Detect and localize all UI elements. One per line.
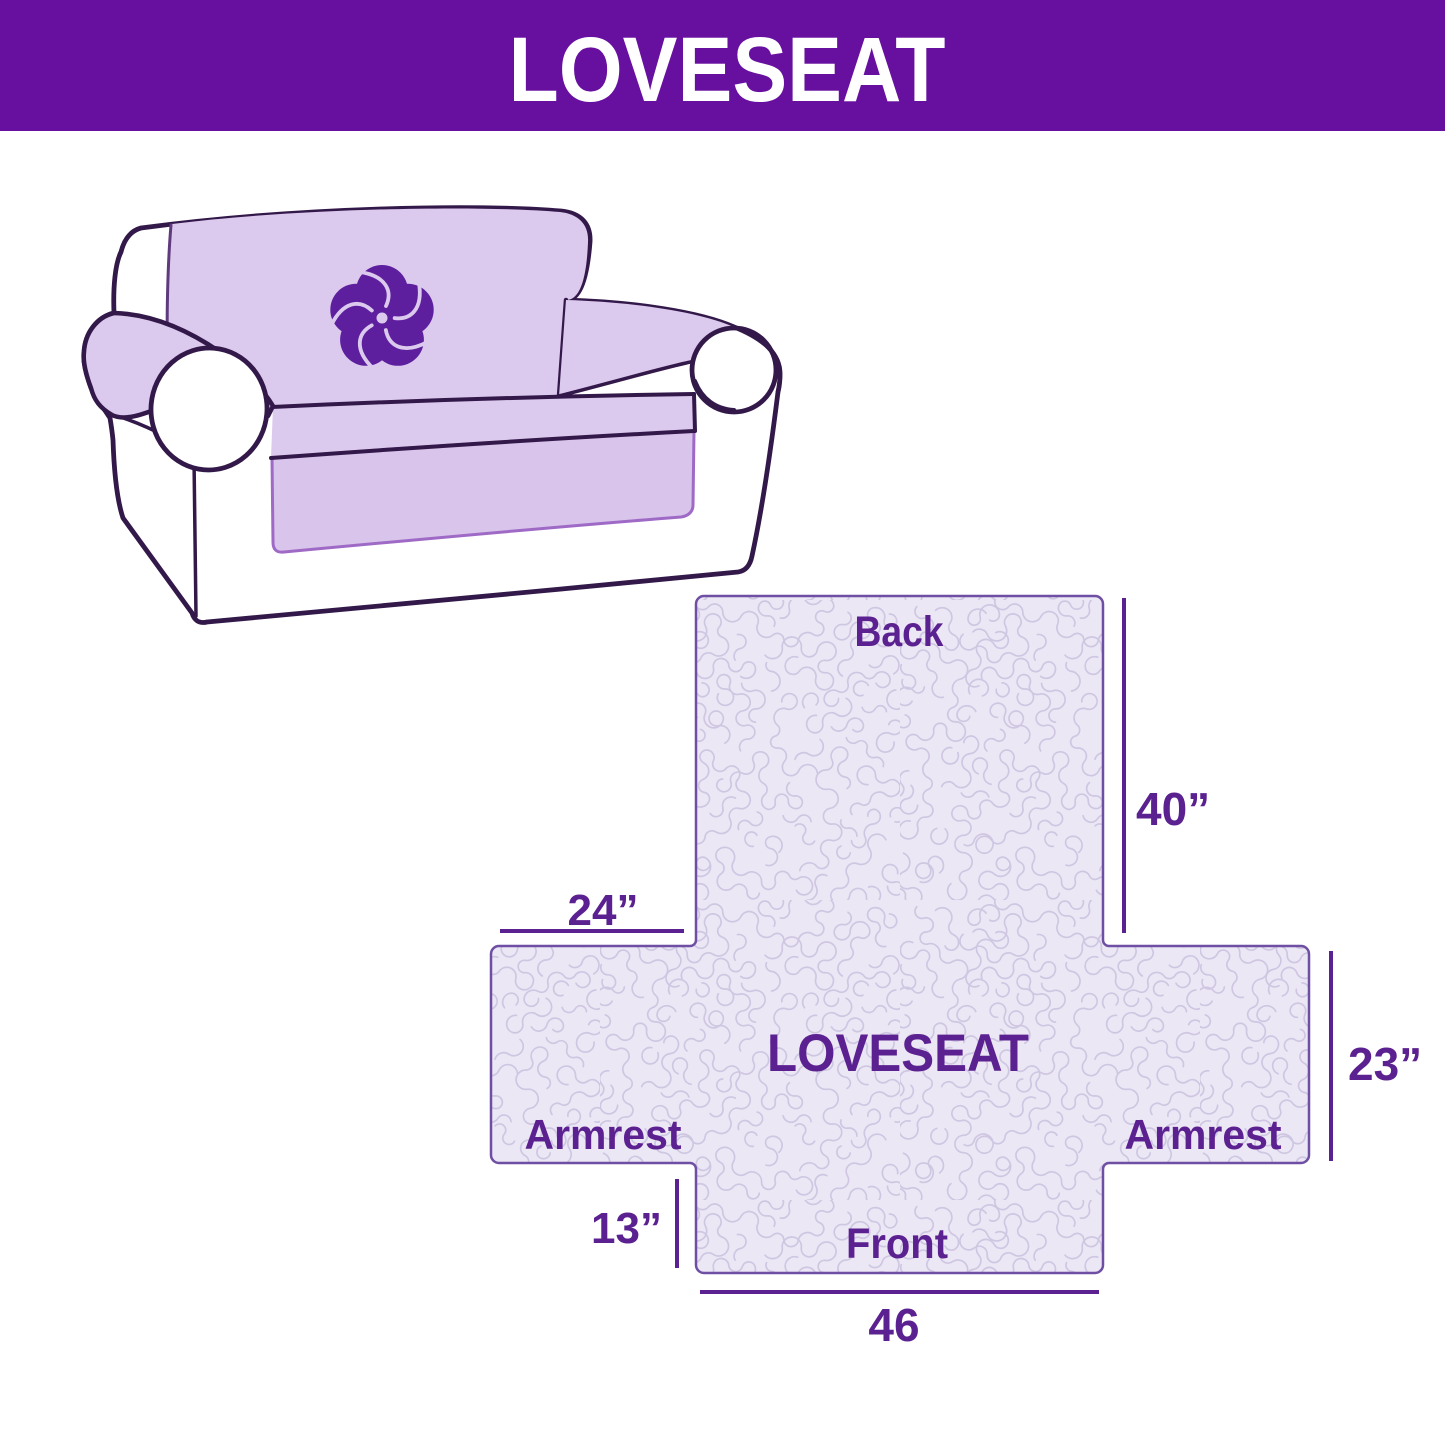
svg-text:Armrest: Armrest — [525, 1111, 682, 1158]
svg-text:40”: 40” — [1136, 783, 1210, 835]
svg-text:46: 46 — [868, 1299, 919, 1351]
svg-text:LOVESEAT: LOVESEAT — [509, 19, 946, 121]
svg-text:13”: 13” — [591, 1204, 662, 1253]
svg-text:Armrest: Armrest — [1125, 1111, 1282, 1158]
svg-text:LOVESEAT: LOVESEAT — [767, 1024, 1029, 1083]
svg-text:Front: Front — [846, 1220, 948, 1268]
svg-text:24”: 24” — [568, 886, 639, 935]
svg-text:23”: 23” — [1348, 1038, 1422, 1090]
svg-text:Back: Back — [855, 608, 944, 656]
